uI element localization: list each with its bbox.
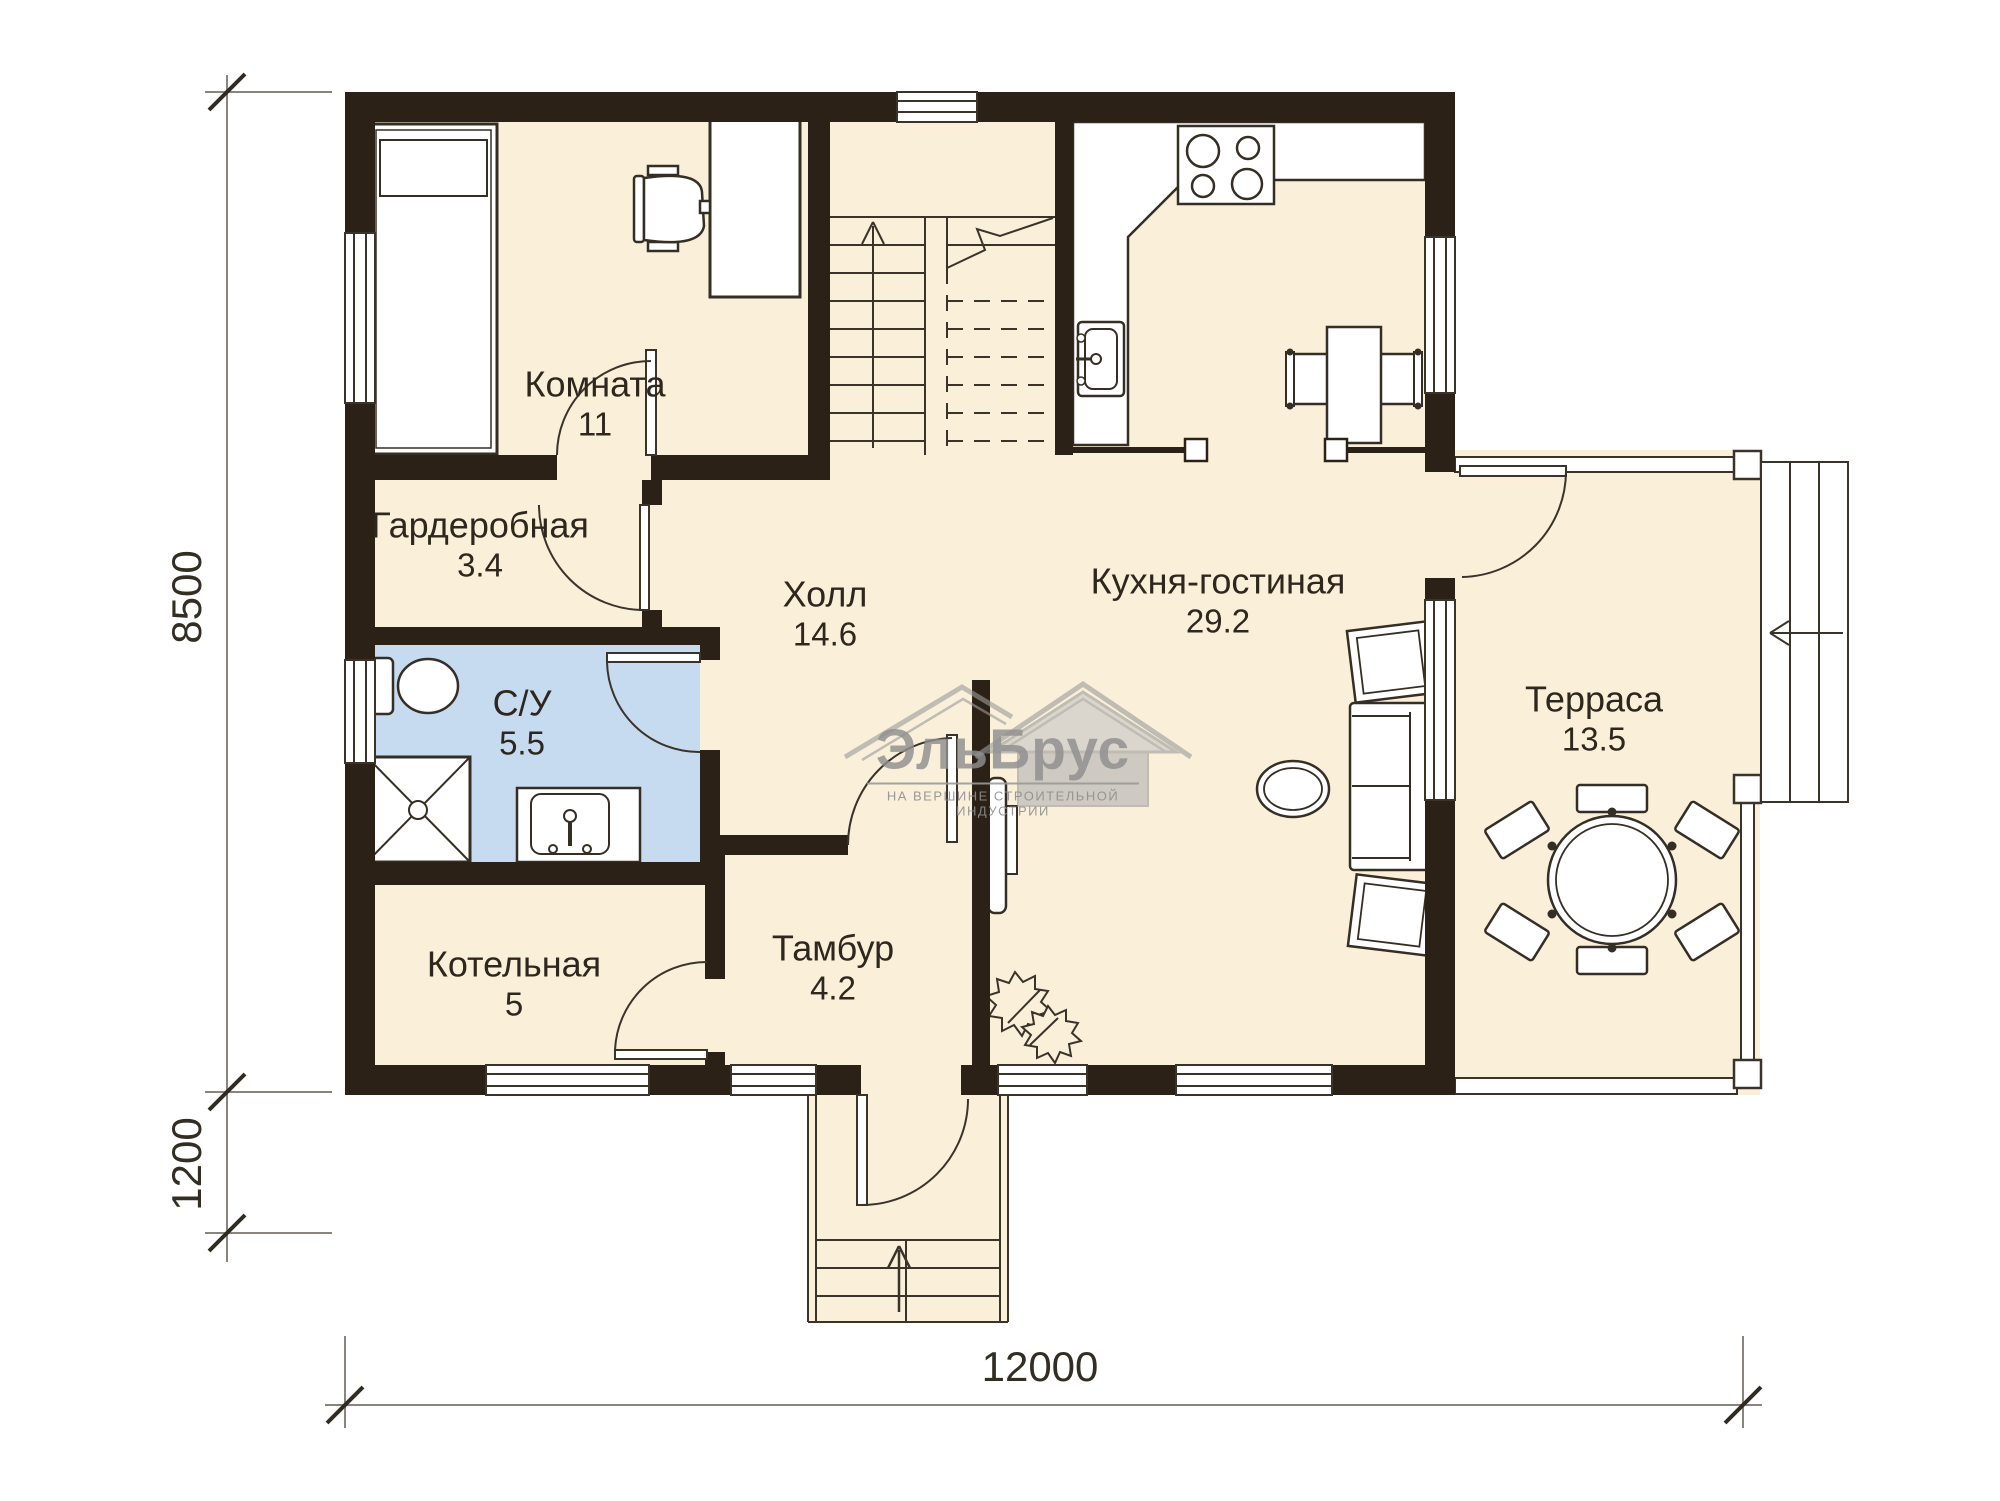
room-area: 5.5 bbox=[493, 725, 552, 764]
room-name: Комната bbox=[525, 363, 666, 405]
room-name: Кухня-гостиная bbox=[1091, 560, 1346, 602]
window-left-bedroom bbox=[345, 233, 375, 403]
terrace-post bbox=[1734, 1060, 1761, 1088]
room-label-su: С/У 5.5 bbox=[493, 682, 552, 763]
room-area: 11 bbox=[525, 406, 666, 445]
window-bottom-2 bbox=[731, 1065, 816, 1095]
room-area: 13.5 bbox=[1525, 721, 1663, 760]
stove-icon bbox=[1178, 126, 1274, 204]
terrace-steps-icon bbox=[1761, 462, 1848, 802]
coffee-table-icon bbox=[1257, 761, 1329, 817]
room-name: Холл bbox=[783, 573, 868, 615]
room-label-tambur: Тамбур 4.2 bbox=[772, 927, 894, 1008]
room-area: 29.2 bbox=[1091, 603, 1346, 642]
window-bottom-1 bbox=[486, 1065, 649, 1095]
terrace-rail-right bbox=[1741, 802, 1754, 1064]
floor-plan-drawing bbox=[0, 0, 2000, 1501]
dimension-height-porch: 1200 bbox=[163, 1117, 211, 1210]
dimension-width-total: 12000 bbox=[982, 1343, 1099, 1391]
terrace-rail-bottom bbox=[1455, 1078, 1737, 1094]
room-name: Тамбур bbox=[772, 927, 894, 969]
room-label-komnata: Комната 11 bbox=[525, 363, 666, 444]
room-area: 5 bbox=[427, 986, 601, 1025]
room-area: 3.4 bbox=[371, 547, 589, 586]
window-left-bathroom bbox=[345, 660, 375, 763]
wardrobe-icon bbox=[710, 118, 800, 297]
terrace-post bbox=[1734, 451, 1761, 479]
sofa-icon bbox=[1350, 703, 1430, 870]
bed-icon bbox=[370, 124, 497, 454]
armchair-icon-top bbox=[1347, 621, 1435, 702]
window-bottom-3 bbox=[998, 1065, 1087, 1095]
bathroom-sink-icon bbox=[517, 788, 640, 862]
window-top bbox=[897, 92, 977, 122]
terrace-post bbox=[1734, 775, 1761, 803]
dimension-height-main: 8500 bbox=[163, 550, 211, 643]
room-label-terrasa: Терраса 13.5 bbox=[1525, 678, 1663, 759]
dining-chair-right bbox=[1380, 349, 1422, 409]
room-label-garderobnaya: Гардеробная 3.4 bbox=[371, 504, 589, 585]
window-right-kitchen bbox=[1425, 237, 1455, 393]
room-name: Терраса bbox=[1525, 678, 1663, 720]
pillow bbox=[380, 140, 487, 196]
window-bottom-4 bbox=[1176, 1065, 1332, 1095]
shower-icon bbox=[367, 757, 470, 862]
room-area: 14.6 bbox=[783, 616, 868, 655]
floor-plan-page: Комната 11 Гардеробная 3.4 С/У 5.5 Котел… bbox=[0, 0, 2000, 1501]
window-right-living bbox=[1425, 600, 1455, 800]
room-label-kuhnya: Кухня-гостиная 29.2 bbox=[1091, 560, 1346, 641]
room-name: Гардеробная bbox=[371, 504, 589, 546]
room-area: 4.2 bbox=[772, 970, 894, 1009]
room-name: Котельная bbox=[427, 943, 601, 985]
room-label-holl: Холл 14.6 bbox=[783, 573, 868, 654]
dining-chair-left bbox=[1286, 349, 1328, 409]
room-name: С/У bbox=[493, 682, 552, 724]
armchair-icon-bottom bbox=[1348, 874, 1436, 955]
kitchen-sink-icon bbox=[1076, 322, 1124, 396]
room-label-kotelnaya: Котельная 5 bbox=[427, 943, 601, 1024]
